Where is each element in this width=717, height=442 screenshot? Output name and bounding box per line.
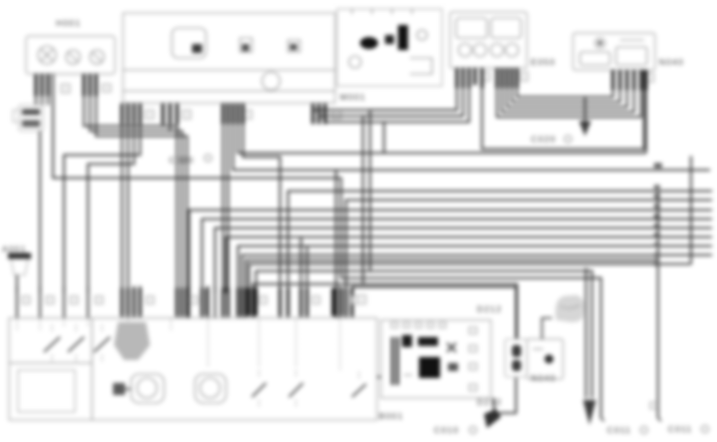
svg-text:C020: C020 (531, 134, 556, 144)
svg-text:C010: C010 (434, 425, 459, 435)
svg-text:N040: N040 (659, 57, 684, 67)
svg-text:C020: C020 (169, 155, 194, 165)
svg-text:B001: B001 (379, 411, 404, 421)
svg-text:N040: N040 (531, 373, 556, 383)
svg-text:D212: D212 (477, 397, 502, 407)
svg-text:C011: C011 (668, 424, 693, 434)
svg-text:C011: C011 (607, 425, 632, 435)
svg-text:M001: M001 (340, 92, 366, 102)
svg-text:E050: E050 (531, 57, 556, 67)
svg-text:H001: H001 (56, 18, 81, 28)
svg-text:D212: D212 (477, 304, 502, 314)
svg-text:A001: A001 (2, 244, 27, 254)
